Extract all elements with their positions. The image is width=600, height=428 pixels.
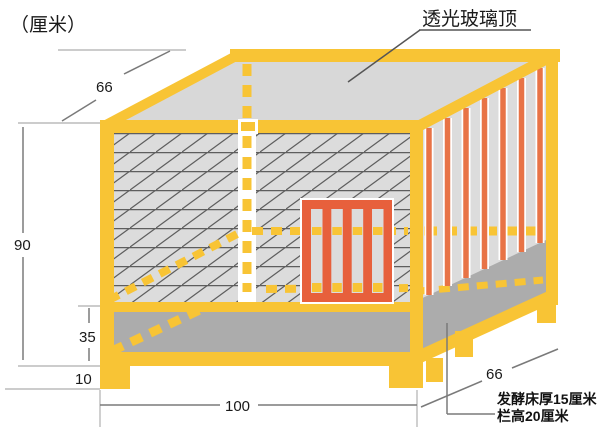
bed-front-bottom-rail — [100, 352, 422, 366]
dim-top-depth-seg1 — [62, 100, 96, 121]
glass-back-rail — [230, 49, 560, 62]
dim-right-depth-value: 66 — [486, 366, 503, 383]
dim-width-value: 100 — [225, 398, 250, 415]
dim-top-depth-value: 66 — [96, 79, 113, 96]
bed-note-line2: 栏高20厘米 — [497, 408, 570, 424]
dim-top-depth-seg2 — [124, 51, 170, 74]
glass-top-label: 透光玻璃顶 — [422, 8, 517, 30]
dim-leg-value: 10 — [75, 371, 92, 388]
back-right-post — [546, 53, 558, 305]
front-rail-notch-dash — [241, 122, 255, 131]
door-slot — [311, 209, 323, 293]
cage-diagram: （厘米） 透光玻璃顶 66 90 35 10 100 66 发酵床厚15厘米 栏… — [0, 0, 600, 428]
dim-height-value: 90 — [14, 237, 31, 254]
front-top-rail — [100, 120, 422, 133]
unit-label: （厘米） — [10, 14, 86, 36]
front-left-leg — [100, 366, 130, 389]
right-inner-leg — [426, 358, 443, 382]
door-slot — [331, 209, 343, 293]
dim-right-depth-seg2 — [512, 349, 558, 368]
door-slot — [372, 209, 384, 293]
dim-bed-wall-value: 35 — [79, 329, 96, 346]
cage-diagram-page: （厘米） 透光玻璃顶 66 90 35 10 100 66 发酵床厚15厘米 栏… — [0, 0, 600, 428]
right-mid-leg — [455, 331, 473, 357]
bed-note-line1: 发酵床厚15厘米 — [496, 391, 598, 407]
left-post — [100, 120, 114, 368]
front-right-post — [410, 125, 423, 388]
door-group — [300, 198, 394, 304]
door-slot — [352, 209, 364, 293]
dim-right-depth-seg1 — [421, 381, 482, 407]
